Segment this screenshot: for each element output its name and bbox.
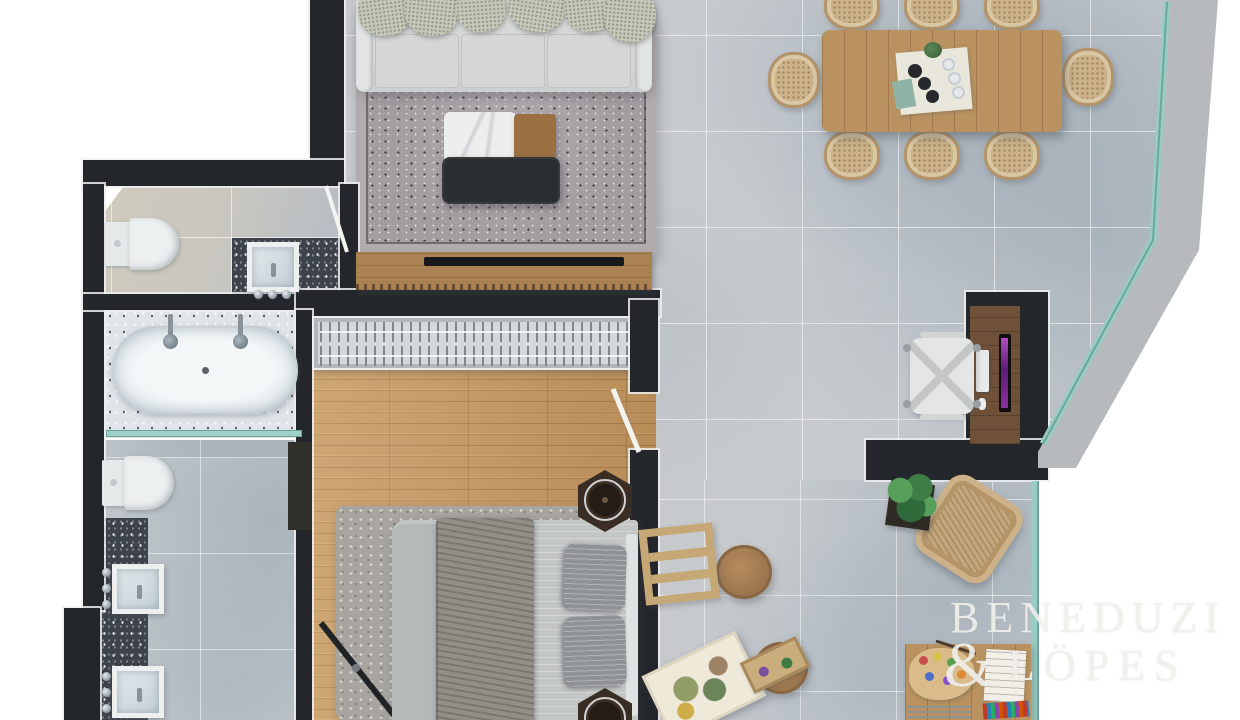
faucet-knob — [254, 290, 263, 299]
headboard — [626, 534, 638, 716]
paint-dab — [925, 672, 934, 681]
tub-drain — [202, 367, 209, 374]
glass-shower-partition — [106, 430, 302, 437]
chair-armrest — [920, 332, 964, 338]
watermark-line2: LÖPES — [1008, 640, 1187, 691]
tv — [424, 257, 624, 266]
wall-bedroom-top — [296, 290, 660, 316]
bed-pillow — [563, 615, 627, 687]
faucet-knob — [102, 704, 111, 713]
monitor-screen — [1001, 338, 1008, 408]
bath-cabinet — [288, 442, 312, 530]
flush-button — [110, 479, 117, 486]
ottoman — [442, 157, 560, 204]
dining-chair — [768, 52, 820, 108]
faucet-knob — [102, 600, 111, 609]
sofa-seat-cushion — [461, 34, 545, 88]
chair-caster — [973, 344, 981, 352]
faucet-knob — [282, 290, 291, 299]
vanity-sink — [112, 564, 164, 614]
round-stool — [716, 545, 772, 599]
dining-chair — [904, 130, 960, 180]
paint-dab — [919, 656, 928, 665]
console-dentil-trim — [356, 284, 652, 290]
dining-chair — [984, 130, 1040, 180]
blanket — [436, 518, 534, 720]
faucet — [271, 263, 276, 277]
monitor — [999, 334, 1011, 412]
chair-caster — [973, 400, 981, 408]
faucet — [137, 585, 142, 599]
bowl — [926, 90, 939, 103]
office-chair — [910, 338, 974, 414]
wall-bedroom-right-upper — [630, 300, 658, 392]
dining-chair — [824, 130, 880, 180]
watermark-logo: BENEDUZI & LÖPES — [944, 592, 1204, 712]
chair-caster — [903, 344, 911, 352]
monstera-plant — [884, 470, 938, 528]
tub-faucet-head — [233, 334, 248, 349]
plate — [942, 58, 955, 71]
floor-plan-canvas: BENEDUZI & LÖPES — [0, 0, 1240, 720]
flush-button — [114, 240, 121, 247]
wall-left-upper — [83, 184, 104, 610]
sofa-seat-cushion — [547, 34, 631, 88]
toilet-tank — [102, 460, 126, 506]
bowl — [908, 64, 922, 78]
easel-crossbar — [651, 569, 710, 584]
faucet-knob — [102, 568, 111, 577]
bowl — [918, 77, 931, 90]
chair-caster — [903, 400, 911, 408]
wall-powder-top — [83, 160, 344, 186]
easel-frame — [638, 522, 720, 605]
vanity-sink — [112, 666, 164, 718]
faucet-knob — [102, 584, 111, 593]
plate — [948, 72, 961, 85]
tub-faucet-head — [163, 334, 178, 349]
toilet-tank — [105, 222, 131, 266]
supply-dot — [757, 665, 770, 678]
faucet-knob — [102, 672, 111, 681]
easel-crossbar — [649, 547, 708, 562]
bed — [392, 520, 638, 720]
dining-chair — [1062, 48, 1114, 106]
closet — [312, 316, 648, 370]
bed-pillow — [563, 543, 627, 611]
wall-left-lower — [64, 608, 100, 720]
centerpiece-plant — [924, 42, 942, 58]
wall-living-left — [310, 0, 344, 164]
faucet-knob — [102, 688, 111, 697]
coffee-table-marble-top — [444, 112, 516, 162]
nightstand-knob — [602, 497, 608, 503]
sofa-seat-cushion — [375, 34, 459, 88]
watermark-ampersand: & — [944, 628, 994, 702]
faucet — [137, 688, 142, 702]
coffee-table-wood-top — [514, 114, 556, 161]
paint-dab — [933, 652, 942, 661]
wall-powder-bottom — [83, 294, 311, 310]
chair-armrest — [920, 414, 964, 420]
bathtub — [112, 326, 298, 414]
keyboard — [976, 350, 989, 392]
sofa — [356, 0, 652, 92]
closet-rail-1 — [320, 331, 640, 333]
supply-dot — [780, 656, 795, 671]
faucet-knob — [268, 290, 277, 299]
plate — [952, 86, 965, 99]
dining-table — [822, 30, 1062, 132]
tv-console — [356, 252, 652, 290]
sheet-edge — [392, 524, 438, 720]
closet-rail-2 — [320, 355, 640, 357]
powder-sink — [247, 242, 299, 292]
